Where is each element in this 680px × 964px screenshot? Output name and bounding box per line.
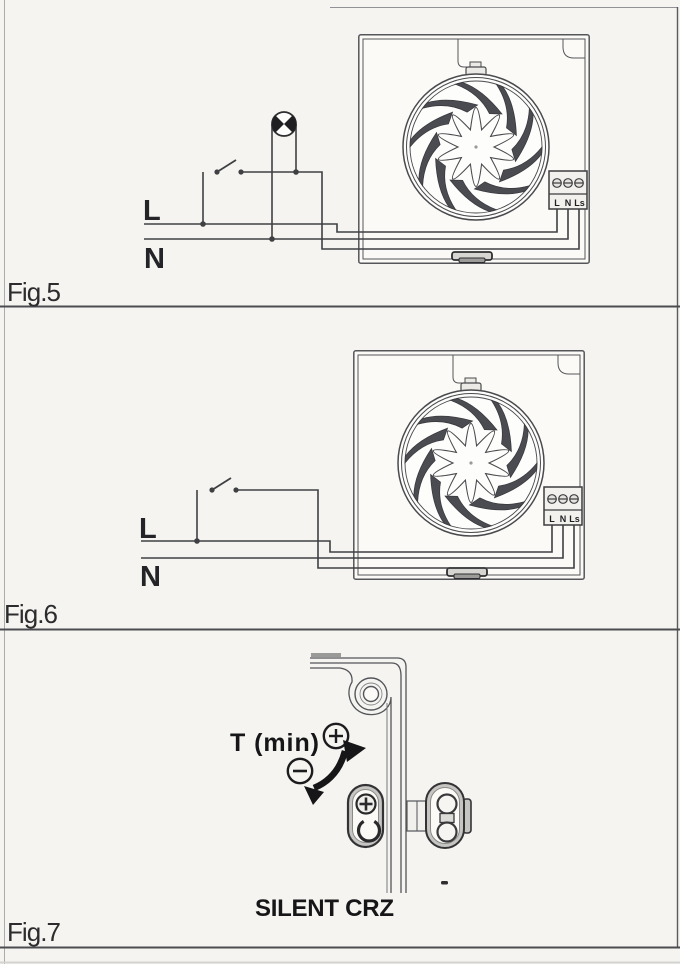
side-connector-icon <box>407 783 471 848</box>
junction-dot <box>293 169 299 175</box>
model-name-label: SILENT CRZ <box>255 895 394 922</box>
manual-diagrams: L N L N Ls Fig.5 L N L N Ls Fig.6 <box>0 0 680 964</box>
fan-unit <box>359 35 589 263</box>
figure-6-panel: L N L N Ls Fig.6 <box>4 351 584 629</box>
phillips-screw-icon <box>357 795 376 814</box>
switch-icon <box>209 478 238 493</box>
figure-5-caption: Fig.5 <box>7 277 61 307</box>
screw-boss-icon <box>355 678 387 710</box>
figure-7-caption: Fig.7 <box>7 917 61 947</box>
live-label: L <box>139 513 157 545</box>
print-mark <box>441 881 448 885</box>
lamp-icon <box>272 112 296 136</box>
figure-7-panel: T (min) SILENT CRZ Fig.7 <box>7 653 471 947</box>
housing-corner <box>310 653 406 893</box>
junction-dot <box>200 221 206 227</box>
neutral-label: N <box>140 561 161 593</box>
fan-unit <box>354 351 584 579</box>
junction-dot <box>269 236 275 242</box>
terminal-label-l: L <box>554 198 560 208</box>
live-label: L <box>143 195 161 227</box>
terminal-label-ls: Ls <box>574 198 585 208</box>
switch-icon <box>214 160 243 175</box>
terminal-label-n: N <box>560 514 567 524</box>
minus-icon <box>288 759 312 783</box>
terminal-label-ls: Ls <box>569 514 580 524</box>
junction-dot <box>194 538 200 544</box>
timer-setting-label: T (min) <box>230 729 319 757</box>
neutral-label: N <box>144 243 165 275</box>
figure-6-caption: Fig.6 <box>4 599 58 629</box>
terminal-label-l: L <box>549 514 555 524</box>
manual-page: L N L N Ls Fig.5 L N L N Ls Fig.6 <box>0 0 680 964</box>
timer-trimmer-icon <box>348 785 383 847</box>
terminal-label-n: N <box>565 198 572 208</box>
figure-5-panel: L N L N Ls Fig.5 <box>7 35 589 307</box>
